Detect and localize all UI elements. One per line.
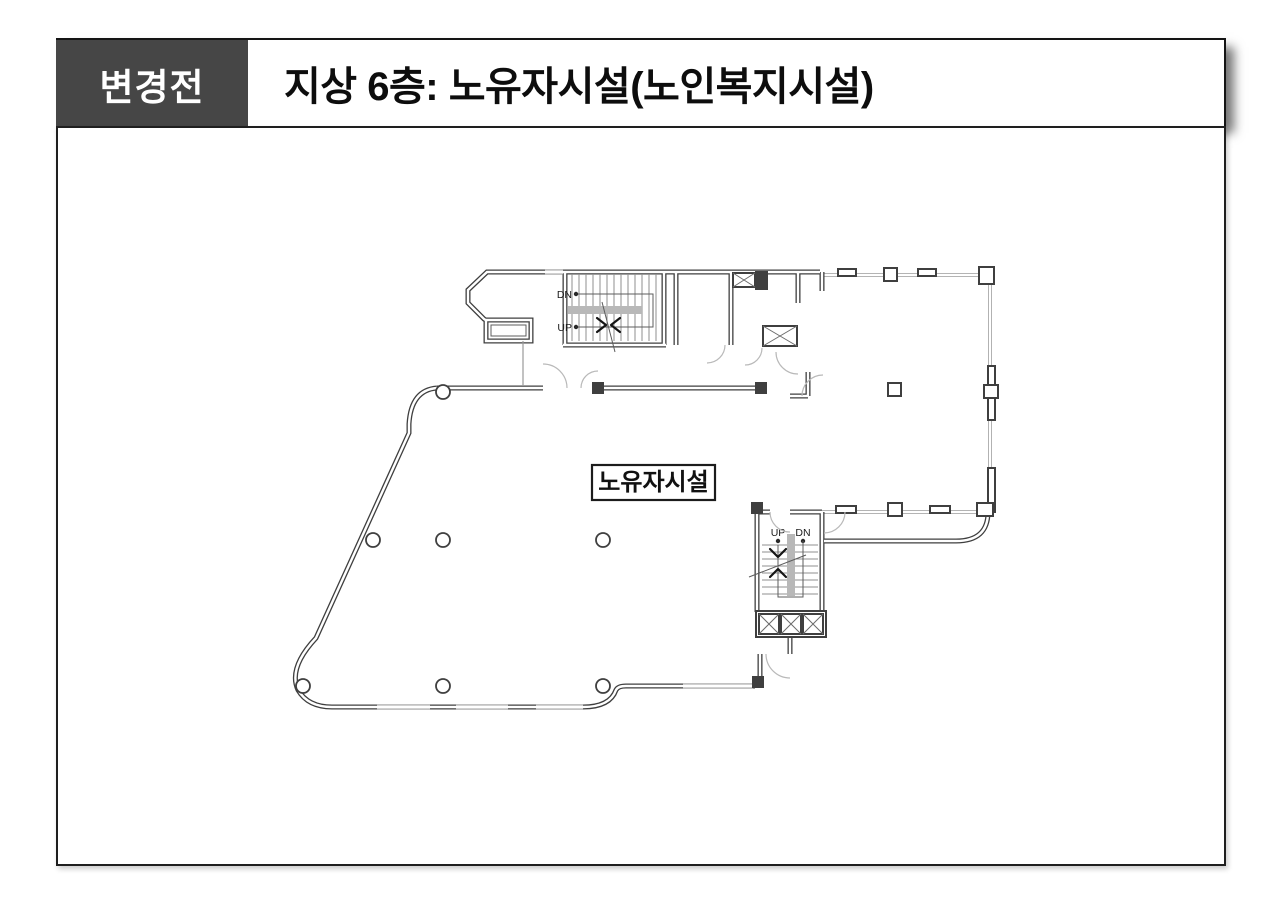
columns-round <box>296 385 610 693</box>
upper-stair-dn-label: DN <box>557 289 572 301</box>
shafts <box>733 271 826 637</box>
floor-plan: DN UP UP DN <box>0 0 1280 905</box>
planter-inner <box>491 325 526 336</box>
upper-stair: DN UP <box>557 274 656 352</box>
room-label: 노유자시설 <box>592 465 715 500</box>
room-label-text: 노유자시설 <box>598 469 708 496</box>
elevator-solid <box>755 271 768 290</box>
curtain-walls <box>820 275 990 512</box>
wall-posts <box>592 382 767 688</box>
lower-stair-up-label: UP <box>771 527 786 539</box>
columns-square <box>836 267 998 516</box>
stair-handrail <box>787 534 795 596</box>
lower-stair-dn-label: DN <box>795 527 810 539</box>
upper-stair-up-label: UP <box>557 322 572 334</box>
